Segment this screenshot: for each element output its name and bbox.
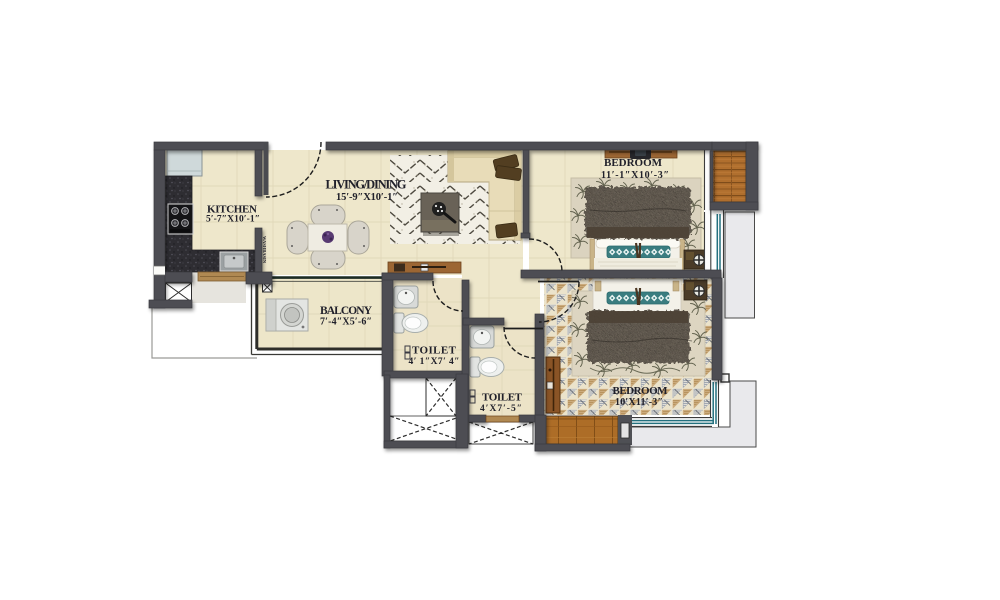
svg-text:LIVING/DINING: LIVING/DINING xyxy=(326,178,407,192)
svg-text:BALCONY: BALCONY xyxy=(320,305,373,317)
svg-text:15′-9″X10′-1″: 15′-9″X10′-1″ xyxy=(336,192,398,203)
svg-text:TOILET: TOILET xyxy=(412,345,457,357)
svg-text:WASHBASIN: WASHBASIN xyxy=(262,236,267,264)
svg-text:10′X11′-3″: 10′X11′-3″ xyxy=(615,397,663,408)
svg-text:BEDROOM: BEDROOM xyxy=(613,385,669,397)
svg-text:4′X7′-5″: 4′X7′-5″ xyxy=(480,404,522,414)
svg-text:7′-4″X5′-6″: 7′-4″X5′-6″ xyxy=(320,317,372,328)
svg-text:TOILET: TOILET xyxy=(482,392,523,404)
svg-text:11′-1″X10′-3″: 11′-1″X10′-3″ xyxy=(601,170,669,181)
svg-text:4′ 1″X7′ 4″: 4′ 1″X7′ 4″ xyxy=(409,357,460,367)
svg-text:5′-7″X10′-1″: 5′-7″X10′-1″ xyxy=(206,215,260,225)
svg-text:BEDROOM: BEDROOM xyxy=(604,157,663,169)
